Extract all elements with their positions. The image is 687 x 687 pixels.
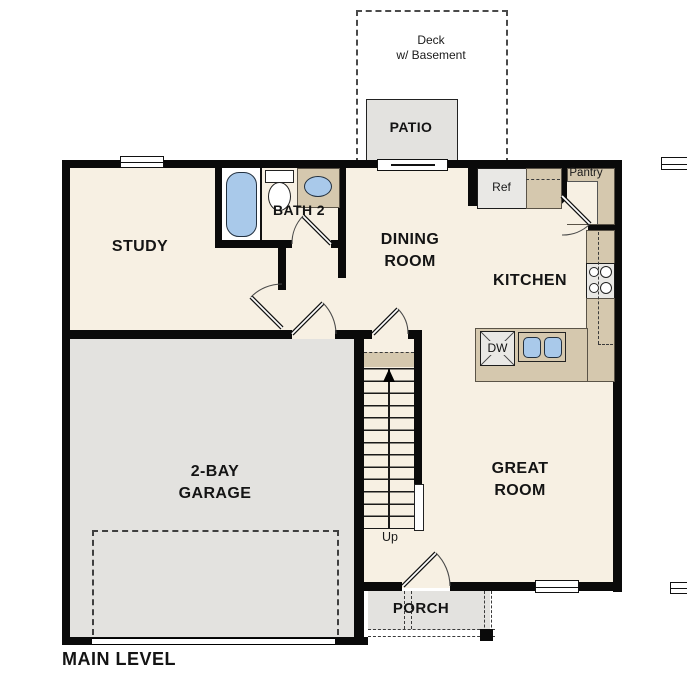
garage-label: 2-BAY GARAGE	[153, 461, 277, 505]
dishwasher-label: DW	[485, 341, 510, 355]
adjacent-structure-fragment-top	[661, 157, 687, 170]
deck-label-line2: w/ Basement	[356, 48, 506, 63]
wall-left	[62, 160, 70, 645]
porch-label: PORCH	[378, 600, 464, 617]
counter-dash-vertical	[598, 232, 599, 344]
porch-edge-dash-2	[368, 636, 495, 637]
wall-study-garage-b	[335, 330, 372, 339]
wall-study-garage-a	[62, 330, 292, 339]
wall-bottom-b	[450, 582, 535, 591]
garage-door	[92, 638, 335, 645]
wall-stairs-right	[414, 330, 422, 484]
wall-ref-stub	[468, 168, 477, 206]
bath2-label: BATH 2	[255, 202, 343, 218]
kitchen-sink-unit	[518, 332, 566, 362]
study-label: STUDY	[78, 238, 202, 256]
wall-bath-left	[215, 168, 222, 248]
deck-label: Deck w/ Basement	[356, 33, 506, 63]
deck-label-line1: Deck	[356, 33, 506, 48]
burner-icon	[600, 266, 612, 278]
sink-basin-icon	[523, 337, 541, 358]
garage-door-path	[92, 530, 339, 635]
patio-sliding-door	[377, 159, 448, 171]
wall-study-east	[278, 240, 286, 290]
slider-panel	[391, 164, 435, 166]
window-pane	[536, 587, 578, 588]
plan-title: MAIN LEVEL	[62, 649, 282, 670]
counter-dash-horizontal	[598, 344, 613, 345]
counter-right-lower	[586, 298, 615, 382]
dining-room-label-line1: DINING	[358, 229, 462, 251]
refrigerator-label: Ref	[477, 180, 526, 194]
dishwasher-icon: DW	[480, 331, 515, 366]
stair-center-line	[388, 368, 390, 529]
garage-label-line1: 2-BAY	[153, 461, 277, 483]
great-room-label-line1: GREAT	[455, 458, 585, 480]
porch-post	[480, 629, 493, 641]
cabinet-right-of-ref	[526, 168, 562, 209]
stair-landing-dash	[364, 352, 414, 353]
great-room-label: GREAT ROOM	[455, 458, 585, 502]
stair-up-arrow-icon	[383, 369, 395, 382]
adjacent-structure-fragment-bottom	[670, 582, 687, 594]
stairs-up-label: Up	[374, 530, 406, 544]
window-pane	[662, 164, 687, 165]
bathtub-icon	[226, 172, 257, 237]
vanity-sink-icon	[304, 176, 332, 197]
patio-label: PATIO	[366, 119, 456, 135]
counter-right-upper	[586, 230, 615, 265]
dining-room-label-line2: ROOM	[358, 251, 462, 273]
porch-edge-dash-1	[368, 629, 495, 630]
wall-bottom-a	[354, 582, 402, 591]
kitchen-label: KITCHEN	[465, 272, 595, 290]
burner-icon	[600, 282, 612, 294]
floor-plan: Deck w/ Basement PATIO Ref Pantry	[0, 0, 687, 687]
upper-cabinet-dash	[526, 179, 560, 180]
window-pane	[671, 588, 687, 589]
garage-label-line2: GARAGE	[153, 483, 277, 505]
study-window	[120, 156, 164, 168]
pantry-label: Pantry	[560, 167, 612, 179]
window-pane	[121, 162, 163, 163]
stair-landing	[364, 352, 414, 367]
pantry-floor	[567, 181, 598, 224]
great-room-window	[535, 580, 579, 593]
stair-railing	[414, 484, 424, 531]
dining-room-label: DINING ROOM	[358, 229, 462, 273]
wall-garage-stairs	[354, 330, 364, 645]
sink-basin-icon	[544, 337, 562, 358]
great-room-label-line2: ROOM	[455, 480, 585, 502]
wall-bottom-c	[577, 582, 622, 591]
